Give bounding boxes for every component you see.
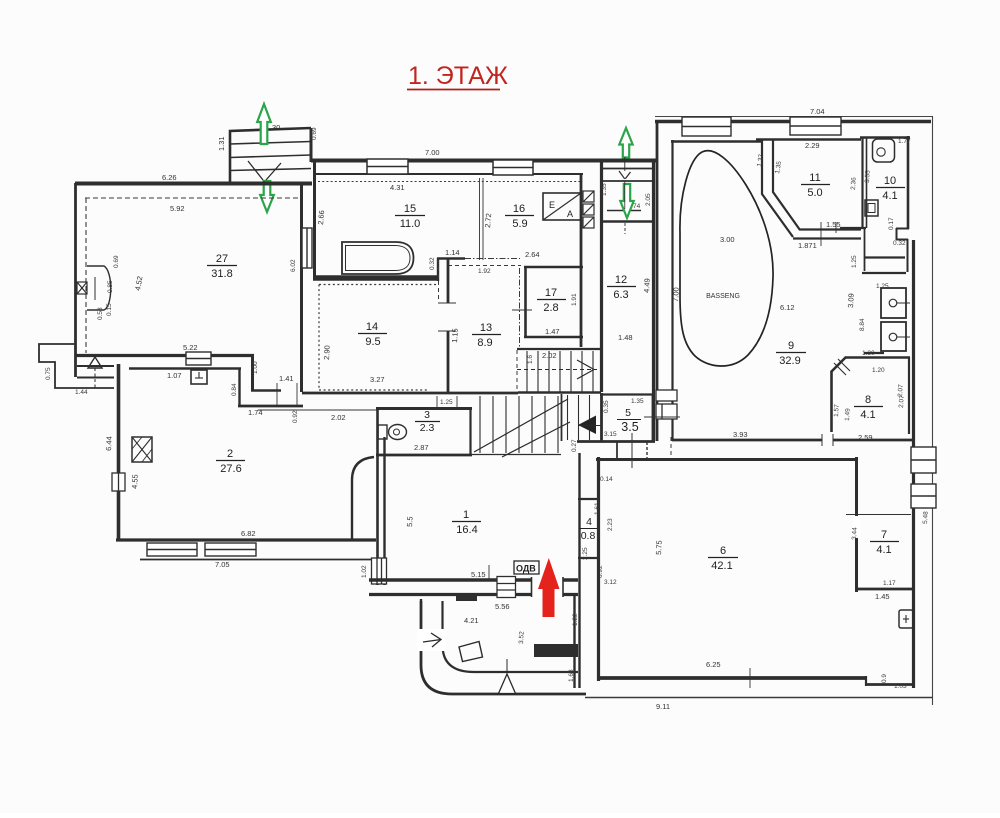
svg-text:3.44: 3.44 <box>851 527 859 540</box>
svg-text:2.25: 2.25 <box>582 547 589 560</box>
svg-text:2.07: 2.07 <box>897 384 905 397</box>
svg-text:2.8: 2.8 <box>543 302 558 314</box>
svg-text:1: 1 <box>463 509 469 521</box>
svg-text:0.27: 0.27 <box>571 439 578 452</box>
svg-text:1.07: 1.07 <box>167 371 182 380</box>
svg-text:5.15: 5.15 <box>471 570 486 579</box>
svg-text:2.05: 2.05 <box>645 193 652 206</box>
svg-text:0.32: 0.32 <box>429 257 436 270</box>
svg-text:6.02: 6.02 <box>290 259 297 272</box>
svg-text:13: 13 <box>480 322 492 334</box>
svg-text:1.77: 1.77 <box>898 138 911 145</box>
svg-text:2.66: 2.66 <box>316 210 326 225</box>
svg-text:14: 14 <box>366 321 378 333</box>
svg-text:7.05: 7.05 <box>215 560 230 569</box>
svg-text:2.23: 2.23 <box>607 518 614 531</box>
svg-text:5.22: 5.22 <box>183 343 198 352</box>
svg-text:27.6: 27.6 <box>220 463 241 475</box>
svg-text:2.3: 2.3 <box>420 422 435 434</box>
svg-text:0.9: 0.9 <box>881 674 888 683</box>
svg-text:4.21: 4.21 <box>464 616 479 625</box>
svg-text:1.14: 1.14 <box>445 248 460 257</box>
svg-text:2.29: 2.29 <box>805 141 820 150</box>
svg-text:3.93: 3.93 <box>733 430 748 439</box>
svg-text:0.15: 0.15 <box>106 303 113 316</box>
svg-text:1. ЭТАЖ: 1. ЭТАЖ <box>408 62 508 90</box>
svg-text:11: 11 <box>809 172 820 184</box>
svg-text:0.53: 0.53 <box>97 307 104 320</box>
svg-text:3.15: 3.15 <box>604 431 617 438</box>
svg-text:1.68: 1.68 <box>568 669 575 682</box>
svg-text:1.57: 1.57 <box>833 404 841 417</box>
svg-text:5.75: 5.75 <box>654 540 664 555</box>
svg-text:1.74: 1.74 <box>248 408 263 417</box>
svg-text:1.55: 1.55 <box>826 220 841 229</box>
svg-text:11.0: 11.0 <box>400 218 421 230</box>
svg-text:1.35: 1.35 <box>631 398 644 405</box>
svg-text:4.1: 4.1 <box>882 190 897 202</box>
svg-text:6.26: 6.26 <box>162 173 177 182</box>
svg-text:6.25: 6.25 <box>706 660 721 669</box>
svg-text:4: 4 <box>586 516 592 528</box>
svg-text:4.1: 4.1 <box>860 409 875 421</box>
svg-text:0.14: 0.14 <box>600 476 613 483</box>
svg-text:0.69: 0.69 <box>113 255 120 268</box>
svg-text:16.4: 16.4 <box>456 524 477 536</box>
svg-text:31.8: 31.8 <box>211 268 232 280</box>
svg-text:7: 7 <box>881 529 887 541</box>
svg-text:7.04: 7.04 <box>810 107 825 116</box>
svg-text:1.30: 1.30 <box>862 350 875 357</box>
svg-text:9.11: 9.11 <box>656 702 670 711</box>
svg-text:27: 27 <box>216 253 228 265</box>
svg-text:5.56: 5.56 <box>495 602 510 611</box>
svg-text:9.5: 9.5 <box>365 336 380 348</box>
svg-text:2.87: 2.87 <box>414 443 429 452</box>
svg-text:5.0: 5.0 <box>807 187 822 199</box>
svg-text:ОДВ: ОДВ <box>516 564 536 574</box>
svg-text:0.8: 0.8 <box>581 530 596 542</box>
svg-text:1.20: 1.20 <box>872 367 885 374</box>
svg-text:1.44: 1.44 <box>75 389 88 396</box>
svg-text:32.9: 32.9 <box>779 355 800 367</box>
svg-text:6.12: 6.12 <box>780 303 795 312</box>
svg-text:2.64: 2.64 <box>525 250 540 259</box>
svg-text:2.36: 2.36 <box>850 177 858 190</box>
svg-text:1.25: 1.25 <box>851 255 858 268</box>
svg-text:1.49: 1.49 <box>844 408 852 421</box>
svg-text:8.84: 8.84 <box>859 318 866 331</box>
svg-text:2.90: 2.90 <box>322 345 332 360</box>
svg-text:16: 16 <box>513 203 525 215</box>
svg-text:4.1: 4.1 <box>876 544 891 556</box>
svg-text:2.72: 2.72 <box>483 213 493 228</box>
svg-text:2.02: 2.02 <box>331 413 346 422</box>
svg-text:1.02: 1.02 <box>361 565 368 578</box>
svg-text:3.55: 3.55 <box>864 170 872 183</box>
svg-text:6.3: 6.3 <box>613 289 628 301</box>
svg-text:30: 30 <box>272 123 280 132</box>
svg-text:10: 10 <box>884 175 896 187</box>
svg-text:0.17: 0.17 <box>888 217 895 230</box>
svg-text:3.52: 3.52 <box>518 631 526 644</box>
svg-text:1.6: 1.6 <box>527 355 534 364</box>
svg-text:74: 74 <box>633 203 641 210</box>
svg-text:1.41: 1.41 <box>279 374 294 383</box>
svg-text:5.92: 5.92 <box>170 204 185 213</box>
svg-text:3: 3 <box>424 409 430 421</box>
svg-text:8.9: 8.9 <box>477 337 492 349</box>
svg-text:3.12: 3.12 <box>604 579 617 586</box>
svg-text:1.871: 1.871 <box>798 241 817 250</box>
svg-text:3.09: 3.09 <box>846 293 856 308</box>
svg-text:5.5: 5.5 <box>405 516 415 527</box>
svg-text:6: 6 <box>720 545 726 557</box>
svg-text:1.25: 1.25 <box>876 283 889 290</box>
svg-text:8: 8 <box>865 394 871 406</box>
svg-text:1.31: 1.31 <box>217 136 226 151</box>
svg-text:1.35: 1.35 <box>601 183 608 196</box>
svg-text:0.35: 0.35 <box>603 400 610 413</box>
svg-text:1.22: 1.22 <box>572 613 579 626</box>
svg-text:5: 5 <box>625 407 631 419</box>
svg-text:3.5: 3.5 <box>621 420 638 434</box>
svg-text:1.45: 1.45 <box>875 592 890 601</box>
svg-text:0.75: 0.75 <box>45 367 52 380</box>
svg-text:3.00: 3.00 <box>720 235 735 244</box>
svg-text:1.91: 1.91 <box>571 293 578 306</box>
svg-text:0.69: 0.69 <box>311 127 318 140</box>
svg-text:4.31: 4.31 <box>390 183 405 192</box>
svg-text:1.03: 1.03 <box>894 683 907 690</box>
svg-text:0.84: 0.84 <box>231 383 238 396</box>
svg-text:BASSENG: BASSENG <box>706 293 740 300</box>
svg-text:0.32: 0.32 <box>893 240 906 247</box>
svg-text:15: 15 <box>404 203 416 215</box>
svg-text:E: E <box>549 200 555 210</box>
svg-text:5.9: 5.9 <box>512 218 527 230</box>
svg-text:2.02: 2.02 <box>542 351 557 360</box>
svg-text:1.47: 1.47 <box>545 327 560 336</box>
svg-text:1.48: 1.48 <box>618 333 633 342</box>
svg-text:17: 17 <box>545 287 557 299</box>
svg-text:3.27: 3.27 <box>370 375 385 384</box>
svg-text:0.85: 0.85 <box>107 280 114 293</box>
svg-text:2: 2 <box>227 448 233 460</box>
svg-text:9: 9 <box>788 340 794 352</box>
svg-text:12: 12 <box>615 274 627 286</box>
svg-text:42.1: 42.1 <box>711 560 732 572</box>
svg-text:7.00: 7.00 <box>425 148 440 157</box>
svg-text:6.44: 6.44 <box>104 436 114 451</box>
svg-text:6.82: 6.82 <box>241 529 256 538</box>
svg-text:5.48: 5.48 <box>922 511 930 524</box>
svg-text:1.15: 1.15 <box>450 328 460 343</box>
svg-text:1.00: 1.00 <box>252 361 259 374</box>
svg-text:0.92: 0.92 <box>292 410 299 423</box>
svg-text:A: A <box>567 209 573 219</box>
svg-text:4.49: 4.49 <box>642 278 652 293</box>
svg-text:4.55: 4.55 <box>130 474 140 489</box>
svg-text:1.92: 1.92 <box>478 268 491 275</box>
svg-text:7.00: 7.00 <box>671 287 681 302</box>
svg-text:1.17: 1.17 <box>883 580 896 587</box>
svg-text:1.25: 1.25 <box>440 399 453 406</box>
